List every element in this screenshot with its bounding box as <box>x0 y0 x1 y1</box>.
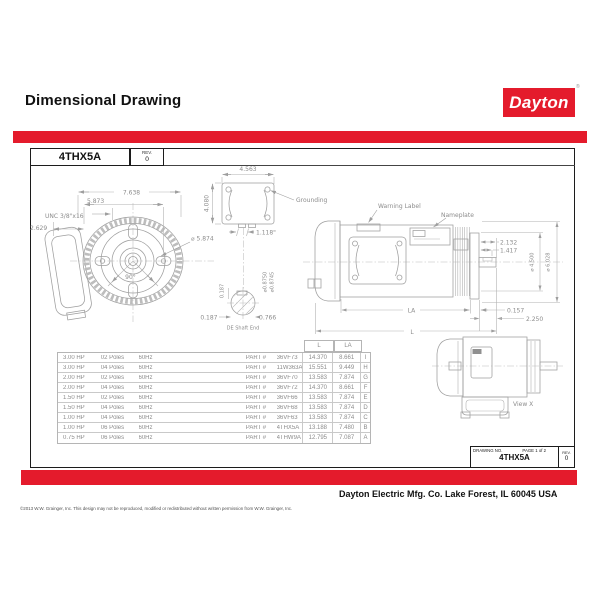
cell-part-label: PART # <box>246 355 277 361</box>
cell-part-number: 36VF63 <box>277 415 303 421</box>
grounding-label: Grounding <box>296 197 328 204</box>
cell-hz: 60Hz <box>139 405 246 411</box>
cell-hp: 3.00 HP <box>58 355 101 361</box>
dim-la: LA <box>408 308 416 315</box>
dim-body-diameter: ⌀ 6.028 <box>546 253 552 272</box>
cell-l: 13.583 <box>302 403 332 412</box>
cell-part-number: 11W363A <box>277 365 303 371</box>
cell-la: 8.661 <box>332 353 360 362</box>
cell-part-number: 36VF73 <box>277 355 303 361</box>
table-row: 1.50 HP 04 Poles 60Hz PART # 36VF68 13.5… <box>58 403 370 413</box>
view-x-flange <box>527 340 540 393</box>
corner-screw <box>226 215 231 220</box>
cell-part-label: PART # <box>246 365 277 371</box>
thread-callout: UNC 3/8"x16 <box>45 213 84 220</box>
table-row: 3.00 HP 04 Poles 60Hz PART # 11W363A 15.… <box>58 363 370 373</box>
dim-key-offset: 0.187 <box>200 315 217 322</box>
corner-screw <box>265 187 270 192</box>
cell-part-label: PART # <box>246 435 277 441</box>
conduit-box-outline <box>222 183 274 224</box>
cell-hp: 1.50 HP <box>58 405 101 411</box>
cell-part-label: PART # <box>246 395 277 401</box>
cell-part-label: PART # <box>246 425 277 431</box>
cell-part-number: 36VF72 <box>277 385 303 391</box>
table-row: 2.00 HP 02 Poles 60Hz PART # 36VF70 13.5… <box>58 373 370 383</box>
dim-knockout: 1.118" <box>256 230 276 237</box>
dim-bolt-spacing: 5.873 <box>87 198 104 205</box>
dim-key-length: 1.417 <box>500 248 517 255</box>
view-x-body <box>463 337 527 397</box>
table-row: 1.00 HP 06 Poles 60Hz PART # 4THX5A 13.1… <box>58 423 370 433</box>
drawing-number: 4THX5A <box>471 454 558 462</box>
corner-screw <box>226 187 231 192</box>
cell-key: C <box>360 413 370 422</box>
table-row: 1.50 HP 02 Poles 60Hz PART # 36VF66 13.5… <box>58 393 370 403</box>
cell-l: 12.795 <box>302 433 332 443</box>
cell-hz: 60Hz <box>139 375 246 381</box>
dim-l: L <box>410 329 414 336</box>
cell-part-number: 36VF66 <box>277 395 303 401</box>
rev-label: REV. <box>562 452 571 456</box>
cell-hp: 3.00 HP <box>58 365 101 371</box>
shaft-end-label: DE Shaft End <box>227 326 260 332</box>
cell-l: 15.551 <box>302 363 332 372</box>
cell-l: 14.370 <box>302 383 332 392</box>
view-x-label: View X <box>513 401 533 408</box>
view-x: View X <box>432 337 563 418</box>
nameplate-mini-logo <box>413 231 425 237</box>
cell-hz: 60Hz <box>139 425 246 431</box>
drawing-number-main: DRAWING NO. PAGE 1 of 2 4THX5A <box>471 447 558 467</box>
cell-la: 8.661 <box>332 383 360 392</box>
rev-value: 0 <box>565 456 568 462</box>
table-row: 2.00 HP 04 Poles 60Hz PART # 36VF72 14.3… <box>58 383 370 393</box>
cell-poles: 04 Poles <box>101 405 139 411</box>
cell-key: F <box>360 383 370 392</box>
cell-poles: 04 Poles <box>101 365 139 371</box>
cell-part-number: 36VF70 <box>277 375 303 381</box>
cell-poles: 02 Poles <box>101 395 139 401</box>
cell-hz: 60Hz <box>139 395 246 401</box>
table-row: 3.00 HP 02 Poles 60Hz PART # 36VF73 14.3… <box>58 353 370 363</box>
dim-shaft-length: 2.132 <box>500 240 517 247</box>
dimensional-drawing-page: Dimensional Drawing Dayton ® 4THX5A REV.… <box>0 0 600 600</box>
front-view: 7.638 5.873 UNC 3/8"x16 2.629 ⌀ 5.874 90… <box>30 190 214 323</box>
cell-part-number: 4THW9A <box>277 435 303 441</box>
dim-box-height: 4.080 <box>204 195 211 212</box>
table-row: 1.00 HP 04 Poles 60Hz PART # 36VF63 13.5… <box>58 413 370 423</box>
shaft-end-detail: 0.187 ⌀0.8750 ⌀0.8745 0.187 0.766 DE Sha… <box>200 272 276 332</box>
conduit-box-view: 4.563 4.080 1.118" Grounding <box>204 166 328 289</box>
dim-offset: 2.629 <box>30 225 47 232</box>
cell-hz: 60Hz <box>139 385 246 391</box>
cell-l: 14.370 <box>302 353 332 362</box>
drawing-rev-cell: REV. 0 <box>558 447 574 467</box>
cell-la: 7.087 <box>332 433 360 443</box>
dim-shaft-dia-max: ⌀0.8750 <box>263 272 269 293</box>
table-header-la: LA <box>334 340 362 352</box>
drawing-number-block: DRAWING NO. PAGE 1 of 2 4THX5A REV. 0 <box>470 446 575 468</box>
drawing-no-label: DRAWING NO. <box>473 449 502 453</box>
cell-poles: 04 Poles <box>101 385 139 391</box>
dim-flange-diameter: ⌀ 4.500 <box>530 253 536 272</box>
cell-key: D <box>360 403 370 412</box>
table-header-l: L <box>304 340 334 352</box>
dim-flange-thickness: 0.157 <box>507 308 524 315</box>
cell-part-label: PART # <box>246 405 277 411</box>
cell-hp: 0.75 HP <box>58 435 101 441</box>
cell-hz: 60Hz <box>139 435 246 441</box>
cell-la: 7.480 <box>332 423 360 432</box>
warning-label-callout: Warning Label <box>378 203 421 210</box>
table-row: 0.75 HP 06 Poles 60Hz PART # 4THW9A 12.7… <box>58 433 370 443</box>
cell-la: 7.874 <box>332 403 360 412</box>
nameplate-callout: Nameplate <box>441 212 474 219</box>
cell-l: 13.583 <box>302 413 332 422</box>
motor-body <box>340 225 453 297</box>
dim-key-flat: 0.766 <box>259 315 276 322</box>
cell-hz: 60Hz <box>139 365 246 371</box>
cell-hz: 60Hz <box>139 355 246 361</box>
dim-overall-width: 7.638 <box>123 190 140 197</box>
cell-l: 13.583 <box>302 393 332 402</box>
cell-la: 7.874 <box>332 373 360 382</box>
dim-pilot-diameter: ⌀ 5.874 <box>191 236 214 243</box>
cell-key: E <box>360 393 370 402</box>
cell-poles: 02 Poles <box>101 375 139 381</box>
rib-block <box>454 239 468 250</box>
bottom-red-bar <box>21 470 577 485</box>
cell-part-label: PART # <box>246 385 277 391</box>
dim-box-width: 4.563 <box>239 166 256 173</box>
cell-hp: 2.00 HP <box>58 385 101 391</box>
cell-la: 7.874 <box>332 413 360 422</box>
cell-poles: 06 Poles <box>101 425 139 431</box>
cell-key: A <box>360 433 370 443</box>
cell-hp: 2.00 HP <box>58 375 101 381</box>
shaft-key <box>483 258 492 262</box>
cell-l: 13.583 <box>302 373 332 382</box>
dim-shaft-dia-min: ⌀0.8745 <box>270 272 276 293</box>
cell-la: 9.449 <box>332 363 360 372</box>
dim-angle: 90° <box>125 274 136 281</box>
cell-poles: 04 Poles <box>101 415 139 421</box>
corner-screw <box>265 215 270 220</box>
side-view: Warning Label Nameplate 2.132 1.417 ⌀ 4.… <box>303 203 563 336</box>
cell-part-number: 4THX5A <box>277 425 303 431</box>
stud <box>308 279 321 288</box>
cell-poles: 06 Poles <box>101 435 139 441</box>
cell-poles: 02 Poles <box>101 355 139 361</box>
cell-part-label: PART # <box>246 375 277 381</box>
cell-hp: 1.00 HP <box>58 415 101 421</box>
fan-cover <box>315 221 340 301</box>
cell-part-label: PART # <box>246 415 277 421</box>
dim-key-height: 0.187 <box>220 284 226 298</box>
copyright-notice: ©2013 W.W. Grainger, Inc. This design ma… <box>20 506 292 511</box>
c-face-flange <box>470 233 479 299</box>
cell-hp: 1.00 HP <box>58 425 101 431</box>
dim-shaft-extension: 2.250 <box>526 316 543 323</box>
cell-key: H <box>360 363 370 372</box>
cell-hp: 1.50 HP <box>58 395 101 401</box>
ratings-table: 3.00 HP 02 Poles 60Hz PART # 36VF73 14.3… <box>57 352 371 444</box>
view-x-fan-cover <box>437 339 463 396</box>
company-address: Dayton Electric Mfg. Co. Lake Forest, IL… <box>339 489 557 499</box>
cell-part-number: 36VF68 <box>277 405 303 411</box>
cell-hz: 60Hz <box>139 415 246 421</box>
cell-key: I <box>360 353 370 362</box>
cell-key: G <box>360 373 370 382</box>
view-x-mini-label <box>473 349 482 354</box>
cell-la: 7.874 <box>332 393 360 402</box>
cell-l: 13.188 <box>302 423 332 432</box>
cell-key: B <box>360 423 370 432</box>
